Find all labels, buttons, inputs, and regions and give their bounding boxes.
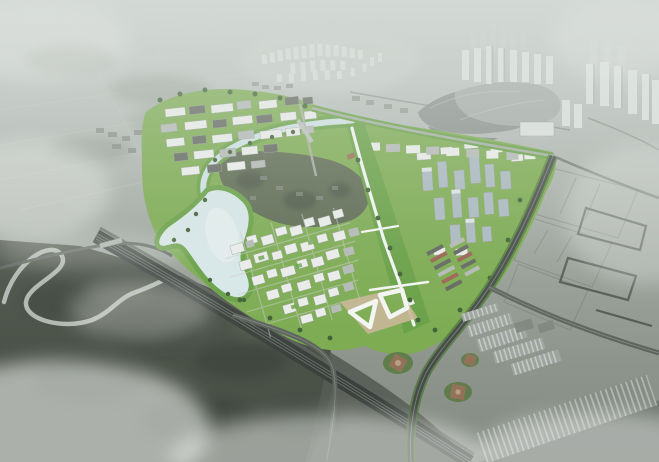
screenshot xyxy=(0,0,659,462)
aerial-rendering xyxy=(0,0,659,462)
atmosphere-haze-overlay xyxy=(0,0,659,462)
